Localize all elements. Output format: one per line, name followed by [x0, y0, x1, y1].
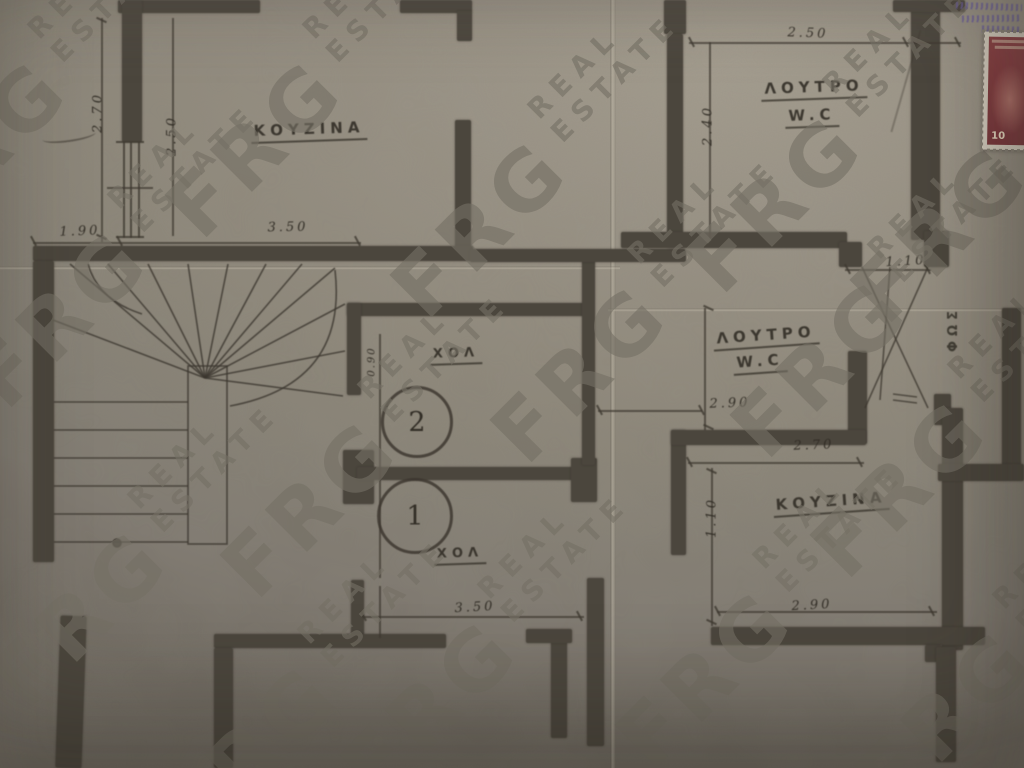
ink-stamp-marks	[962, 14, 1022, 22]
wall-segment	[214, 648, 233, 768]
wall-segment	[893, 0, 965, 12]
wall-segment	[587, 578, 604, 746]
dim-kitchen-right-door: 1.10	[705, 488, 720, 548]
wall-segment	[711, 627, 985, 645]
dim-entry-width: 1.90	[52, 223, 108, 240]
wall-segment	[214, 634, 446, 648]
stamp-inscription-row	[992, 40, 1024, 44]
stamp-value: 10	[991, 131, 1005, 142]
dimension-line	[33, 242, 361, 244]
guide-line	[379, 334, 381, 578]
stamp-inscription-row	[995, 46, 1024, 50]
wall-segment	[357, 467, 582, 480]
dimension-line	[362, 616, 584, 618]
wall-segment	[621, 232, 847, 248]
staircase-diagram	[30, 256, 360, 566]
dimension-line	[598, 410, 702, 412]
dimension-line	[688, 462, 864, 464]
revenue-stamp-art: 10	[987, 37, 1024, 146]
dim-left-inner-depth: 2.50	[165, 106, 180, 166]
wall-segment	[911, 0, 940, 240]
wall-segment	[942, 408, 963, 650]
window-icon	[116, 141, 144, 143]
wall-segment	[347, 303, 589, 316]
wall-segment	[1002, 308, 1021, 473]
dim-hall-door-width: 0.90	[367, 340, 378, 384]
wall-segment	[551, 636, 567, 738]
wall-segment	[470, 249, 686, 262]
dim-tick	[30, 236, 37, 247]
room-label-light-shaft: ΦΩΣ	[946, 284, 961, 352]
wall-segment	[455, 120, 471, 254]
wall-segment	[457, 11, 472, 41]
wall-segment	[667, 34, 683, 248]
dimension-line	[107, 187, 153, 189]
dim-kitchen-upper-width: 3.50	[258, 219, 318, 235]
revenue-stamp: 10	[982, 32, 1024, 151]
wall-segment	[55, 616, 86, 768]
room-label-bath-mid: ΛΟΥΤΡΟ	[710, 322, 823, 348]
dimension-line	[379, 586, 381, 638]
window-icon	[138, 142, 140, 238]
dim-bath-mid-inner-width: 2.70	[786, 437, 842, 454]
dim-bath-upper-width: 2.50	[780, 25, 836, 42]
room-label-kitchen-upper: ΚΟΥΖΙΝΑ	[240, 118, 379, 141]
wall-segment	[938, 464, 1024, 481]
wall-segment	[526, 629, 572, 643]
dim-tick	[354, 236, 361, 247]
room-number-circle-2: 2	[381, 386, 453, 458]
plan-linework: ΚΟΥΖΙΝΑ ΛΟΥΤΡΟ W.C ΛΟΥΤΡΟ W.C ΚΟΥΖΙΝΑ ΧΟ…	[0, 0, 1024, 768]
window-icon	[130, 142, 132, 238]
wall-segment	[664, 0, 686, 34]
room-label-bath-upper-wc: W.C	[780, 105, 845, 125]
wall-segment	[671, 430, 686, 555]
wall-segment	[122, 0, 142, 142]
dim-upper-door-width: 1.10	[880, 253, 933, 271]
wall-segment	[351, 580, 364, 640]
dim-bath-mid-width: 2.90	[702, 395, 758, 412]
dim-hall-width: 3.50	[446, 598, 505, 616]
floor-plan-photo: ΚΟΥΖΙΝΑ ΛΟΥΤΡΟ W.C ΛΟΥΤΡΟ W.C ΚΟΥΖΙΝΑ ΧΟ…	[0, 0, 1024, 768]
room-number-circle-1: 1	[377, 478, 453, 554]
room-label-kitchen-right: ΚΟΥΖΙΝΑ	[768, 488, 895, 515]
dim-kitchen-right-width: 2.90	[782, 596, 843, 614]
dimension-line	[689, 42, 961, 44]
wall-segment	[582, 253, 595, 465]
dim-left-outer-depth: 2.70	[91, 83, 106, 143]
wall-segment	[936, 647, 956, 762]
window-icon	[123, 142, 125, 238]
dim-bath-upper-depth: 2.40	[701, 96, 716, 156]
room-label-hall-upper: ΧΟΛ	[420, 345, 492, 363]
window-icon	[116, 236, 144, 238]
room-label-bath-upper: ΛΟΥΤΡΟ	[758, 76, 871, 98]
room-label-bath-mid-wc: W.C	[727, 350, 792, 372]
pencil-mark	[41, 126, 96, 145]
